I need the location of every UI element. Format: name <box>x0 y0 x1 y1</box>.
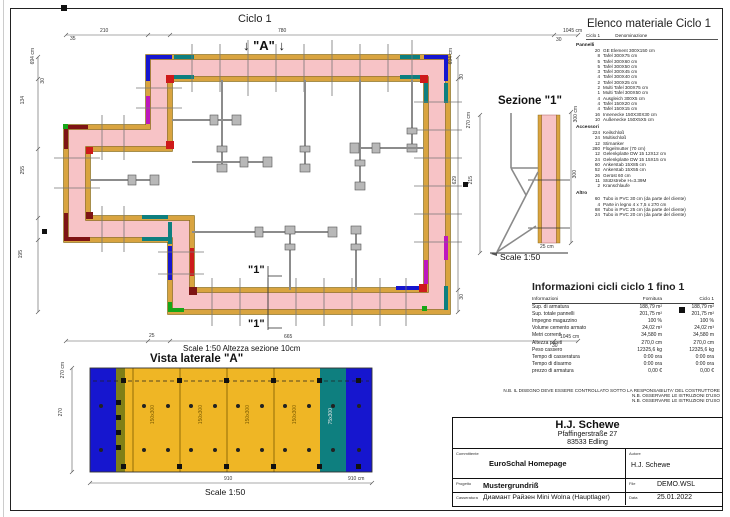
material-item-qty: 24 <box>576 212 600 217</box>
dim-label: 694 cm <box>448 48 454 64</box>
cycle-info-row: Tempo di casseratura0:00 ora0:00 ora <box>532 354 714 361</box>
progetto-label: Progetto <box>456 481 471 486</box>
cycle-info-row-label: Sup. totale pannelli <box>532 311 610 318</box>
material-item-name: Ankerstab 15X85 cm <box>603 162 646 167</box>
cycle-info-row-value: 34,580 m <box>662 332 714 339</box>
cycle-info-row-value: 188,79 m² <box>610 304 662 311</box>
cycle-info-row: Tempo di disarmo0:00 ora0:00 ora <box>532 361 714 368</box>
material-item-name: Außenecke 150X5X5 cm <box>603 117 654 122</box>
material-list: Elenco materiale Ciclo 1 Ciclo 1 Denomin… <box>576 18 722 218</box>
material-list-title: Elenco materiale Ciclo 1 <box>576 18 722 30</box>
cycle-info-rows: Sup. di armatura188,79 m²188,79 m²Sup. t… <box>532 304 714 375</box>
dim-label: 134 <box>20 96 26 104</box>
cycle-info-row: Sup. totale pannelli201,75 m²201,75 m² <box>532 311 714 318</box>
title-block-divider <box>625 449 626 505</box>
cycle-info-row-label: Peso cassero <box>532 347 610 354</box>
dim-label: 35 <box>70 36 76 42</box>
material-item-qty: 10 <box>576 117 600 122</box>
material-item-name: Tafel 300X25 cm <box>603 80 637 85</box>
material-item-name: Tafel 300X45 cm <box>603 69 637 74</box>
dim-label: 910 cm <box>348 476 364 482</box>
dim-label: 270 <box>58 408 64 416</box>
note-line: N.B. OSSERVARE LE ISTRUZIONI D'USO <box>440 398 720 403</box>
cycle-info-row-value: 12325,6 kg <box>662 347 714 354</box>
side-view-scale: Scale 1:50 <box>205 487 245 497</box>
committente-value: EuroSchal Homepage <box>489 459 567 468</box>
cycle-info-row-value: 0,00 € <box>662 368 714 375</box>
casseratura-label: Casseratura <box>456 495 478 500</box>
fold-mark <box>463 182 468 187</box>
cycle-info-row-value: 201,75 m² <box>662 311 714 318</box>
cycle-info-row-label: Sup. di armatura <box>532 304 610 311</box>
data-label: Data <box>629 495 637 500</box>
material-item-name: Keilschloß <box>603 130 624 135</box>
material-item-name: Tafel 150X20 cm <box>603 101 637 106</box>
cycle-info-header: Informazioni Fornitura Ciclo 1 <box>532 296 714 304</box>
dim-label: 665 <box>284 334 292 340</box>
dim-label: 629 <box>452 176 458 184</box>
cycle-info-col: Fornitura <box>610 296 662 303</box>
material-item: 10Außenecke 150X5X5 cm <box>576 117 722 122</box>
dim-label: 30 <box>459 294 465 300</box>
cycle-info-row-value: 0:00 ora <box>662 354 714 361</box>
material-item-name: Tubo in PVC 30 cm (da parte del cliente) <box>603 196 686 201</box>
dim-label: 255 <box>20 166 26 174</box>
section-view-title: Sezione "1" <box>498 95 562 107</box>
cycle-info-row-value: 0:00 ora <box>610 361 662 368</box>
cycle-info-row-label: Tempo di disarmo <box>532 361 610 368</box>
fold-mark <box>61 5 67 11</box>
material-item-name: Multi Tafel 300X50 cm <box>603 90 648 95</box>
plan-scale-note: Scale 1:50 Altezza sezione 10cm <box>183 344 300 353</box>
material-item-name: Ankerstab 15X55 cm <box>603 167 646 172</box>
cycle-info-row-value: 270,0 cm <box>662 340 714 347</box>
dim-label: 30 <box>459 74 465 80</box>
material-list-groups: Pannelli20GE Element 300X150 cm8Tafel 30… <box>576 43 722 218</box>
company-address-line1: Pfaffingerstraße 27 <box>453 431 722 439</box>
cycle-info-row-value: 100 % <box>662 318 714 325</box>
cycle-info-row-value: 100 % <box>610 318 662 325</box>
cycle-info-col: Ciclo 1 <box>662 296 714 303</box>
section-view-scale: Scale 1:50 <box>500 252 540 262</box>
cycle-info-row-value: 270,0 cm <box>610 340 662 347</box>
material-item-name: Tubo in PVC 20 cm (da parte del cliente) <box>603 212 686 217</box>
panel-size-label: 150x300 <box>292 405 298 424</box>
cycle-info-row-label: Metri correnti <box>532 332 610 339</box>
material-item-qty: 2 <box>576 183 600 188</box>
material-item-name: Tafel 300X75 cm <box>603 53 637 58</box>
fold-mark <box>42 229 47 234</box>
panel-size-label: 75x300 <box>328 408 334 424</box>
company-address-line2: 83533 Edling <box>453 439 722 447</box>
material-item-name: Gelenkplatte DW 15 12X12 cm <box>603 151 666 156</box>
material-item-name: Parte in legno 4 x 7,5 x 270 cm <box>603 202 666 207</box>
dim-label: 25 <box>149 333 155 339</box>
fold-mark <box>679 307 685 313</box>
material-list-qty-header: Ciclo 1 <box>586 33 614 38</box>
material-item: 24Tubo in PVC 20 cm (da parte del client… <box>576 212 722 217</box>
down-arrow-icon: ↓ <box>278 38 285 53</box>
cycle-info-row: prezzo di armatura0,00 €0,00 € <box>532 368 714 375</box>
dim-label: 270 cm <box>60 362 66 378</box>
dim-label: 694 cm <box>30 48 36 64</box>
title-block-hline <box>453 492 722 493</box>
material-item-name: Innenecke 150X30X30 cm <box>603 112 657 117</box>
cycle-info-row-value: 24,02 m³ <box>662 325 714 332</box>
company-name: H.J. Schewe <box>453 418 722 431</box>
plan-braces <box>90 80 424 290</box>
cycle-info-row-label: Volume cemento armato <box>532 325 610 332</box>
cycle-info-row-label: Tempo di casseratura <box>532 354 610 361</box>
material-item-name: Gelenkplatte DW 15 15X15 cm <box>603 157 666 162</box>
cycle-info-row: Impegno magazzino100 %100 % <box>532 318 714 325</box>
material-item-name: Stirnanker <box>603 141 624 146</box>
dim-label: 30 <box>40 78 46 84</box>
material-item-name: Flügelmutter (70 cm) <box>603 146 645 151</box>
dim-label: 215 <box>468 176 474 184</box>
dim-label: 195 <box>18 250 24 258</box>
cycle-info-row-label: prezzo di armatura <box>532 368 610 375</box>
material-item-name: Gerüst 60 cm <box>603 173 631 178</box>
title-block: H.J. Schewe Pfaffingerstraße 27 83533 Ed… <box>452 417 723 507</box>
cycle-info-row-value: 201,75 m² <box>610 311 662 318</box>
dim-label: 25 cm <box>540 244 554 250</box>
material-item-name: GE Element 300X150 cm <box>603 48 655 53</box>
cycle-info-row: Altezza pareti270,0 cm270,0 cm <box>532 340 714 347</box>
progetto-value: Mustergrundriß <box>483 481 538 490</box>
cycle-info-row: Peso cassero12325,6 kg12325,6 kg <box>532 347 714 354</box>
notes: N.B. IL DISEGNO DEVE ESSERE CONTROLLATO … <box>440 388 720 403</box>
view-label: "A" <box>253 38 275 53</box>
panel-size-label: 150x300 <box>198 405 204 424</box>
casseratura-value: Диамант Райзен Mini Wolna (Hauptlager) <box>483 494 610 501</box>
plan-title: Ciclo 1 <box>238 13 272 25</box>
down-arrow-icon: ↓ <box>243 38 250 53</box>
material-item-name: Kranschlaufe <box>603 183 630 188</box>
cycle-info-row-value: 0:00 ora <box>610 354 662 361</box>
cycle-info-col: Informazioni <box>532 296 610 303</box>
dim-label: 270 cm <box>466 112 472 128</box>
cycle-info-row-value: 12325,6 kg <box>610 347 662 354</box>
cycle-info-row: Volume cemento armato24,02 m³24,02 m³ <box>532 325 714 332</box>
data-value: 25.01.2022 <box>657 494 692 501</box>
cycle-info-row-value: 34,580 m <box>610 332 662 339</box>
cycle-info-row-label: Altezza pareti <box>532 340 610 347</box>
material-item-name: Multischloß <box>603 135 626 140</box>
dim-label: 780 <box>278 28 286 34</box>
material-item-name: Tafel 300X40 cm <box>603 74 637 79</box>
plan-panel-joint-ticks <box>54 40 462 326</box>
autore-value: H.J. Schewe <box>631 462 670 469</box>
title-block-hline <box>453 478 722 479</box>
title-block-company-row: H.J. Schewe Pfaffingerstraße 27 83533 Ed… <box>453 418 722 449</box>
file-value: DEMO.WSL <box>657 481 695 488</box>
committente-label: Committente <box>456 451 479 456</box>
panel-size-label: 150x300 <box>245 405 251 424</box>
cycle-info-panel: Informazioni cicli ciclo 1 fino 1 Inform… <box>532 281 714 375</box>
material-item-name: Tafel 150X15 cm <box>603 106 637 111</box>
dim-label: 210 <box>100 28 108 34</box>
section-marker-1: "1" <box>248 318 265 330</box>
material-item-name: Ausgleich 300X5 cm <box>603 96 645 101</box>
autore-label: Autore <box>629 451 641 456</box>
material-item: 2Kranschlaufe <box>576 183 722 188</box>
cycle-info-row: Metri correnti34,580 m34,580 m <box>532 332 714 339</box>
material-list-header: Ciclo 1 Denominazione <box>586 33 718 40</box>
section-view-drawing <box>478 110 573 256</box>
cycle-info-row-value: 0:00 ora <box>662 361 714 368</box>
side-view-title: Vista laterale "A" <box>150 353 243 365</box>
cycle-info-row-value: 24,02 m³ <box>610 325 662 332</box>
cycle-info-title: Informazioni cicli ciclo 1 fino 1 <box>532 281 714 293</box>
section-marker-1: "1" <box>248 264 265 276</box>
cycle-info-row: Sup. di armatura188,79 m²188,79 m² <box>532 304 714 311</box>
material-list-name-header: Denominazione <box>615 33 647 38</box>
material-item-name: Multi Tafel 300X75 cm <box>603 85 648 90</box>
cycle-info-row-value: 0,00 € <box>610 368 662 375</box>
panel-size-label: 150x300 <box>150 405 156 424</box>
file-label: File <box>629 481 635 486</box>
title-block-grid: Committente EuroSchal Homepage Autore H.… <box>453 449 722 505</box>
view-direction-marker: ↓ "A" ↓ <box>243 38 285 53</box>
dim-label: 910 <box>224 476 232 482</box>
material-item-name: Stützstrebe H=3.39M <box>603 178 646 183</box>
material-item-name: Tafel 300X50 cm <box>603 64 637 69</box>
material-item-name: Tafel 300X60 cm <box>603 59 637 64</box>
material-item-name: Tubo in PVC 25 cm (da parte del cliente) <box>603 207 686 212</box>
drawing-sheet: Ciclo 1 ↓ "A" ↓ 35 210 780 30 1045 cm 25… <box>0 0 730 517</box>
cycle-info-row-value: 188,79 m² <box>662 304 714 311</box>
dim-label: 30 <box>556 37 562 43</box>
cycle-info-row-label: Impegno magazzino <box>532 318 610 325</box>
